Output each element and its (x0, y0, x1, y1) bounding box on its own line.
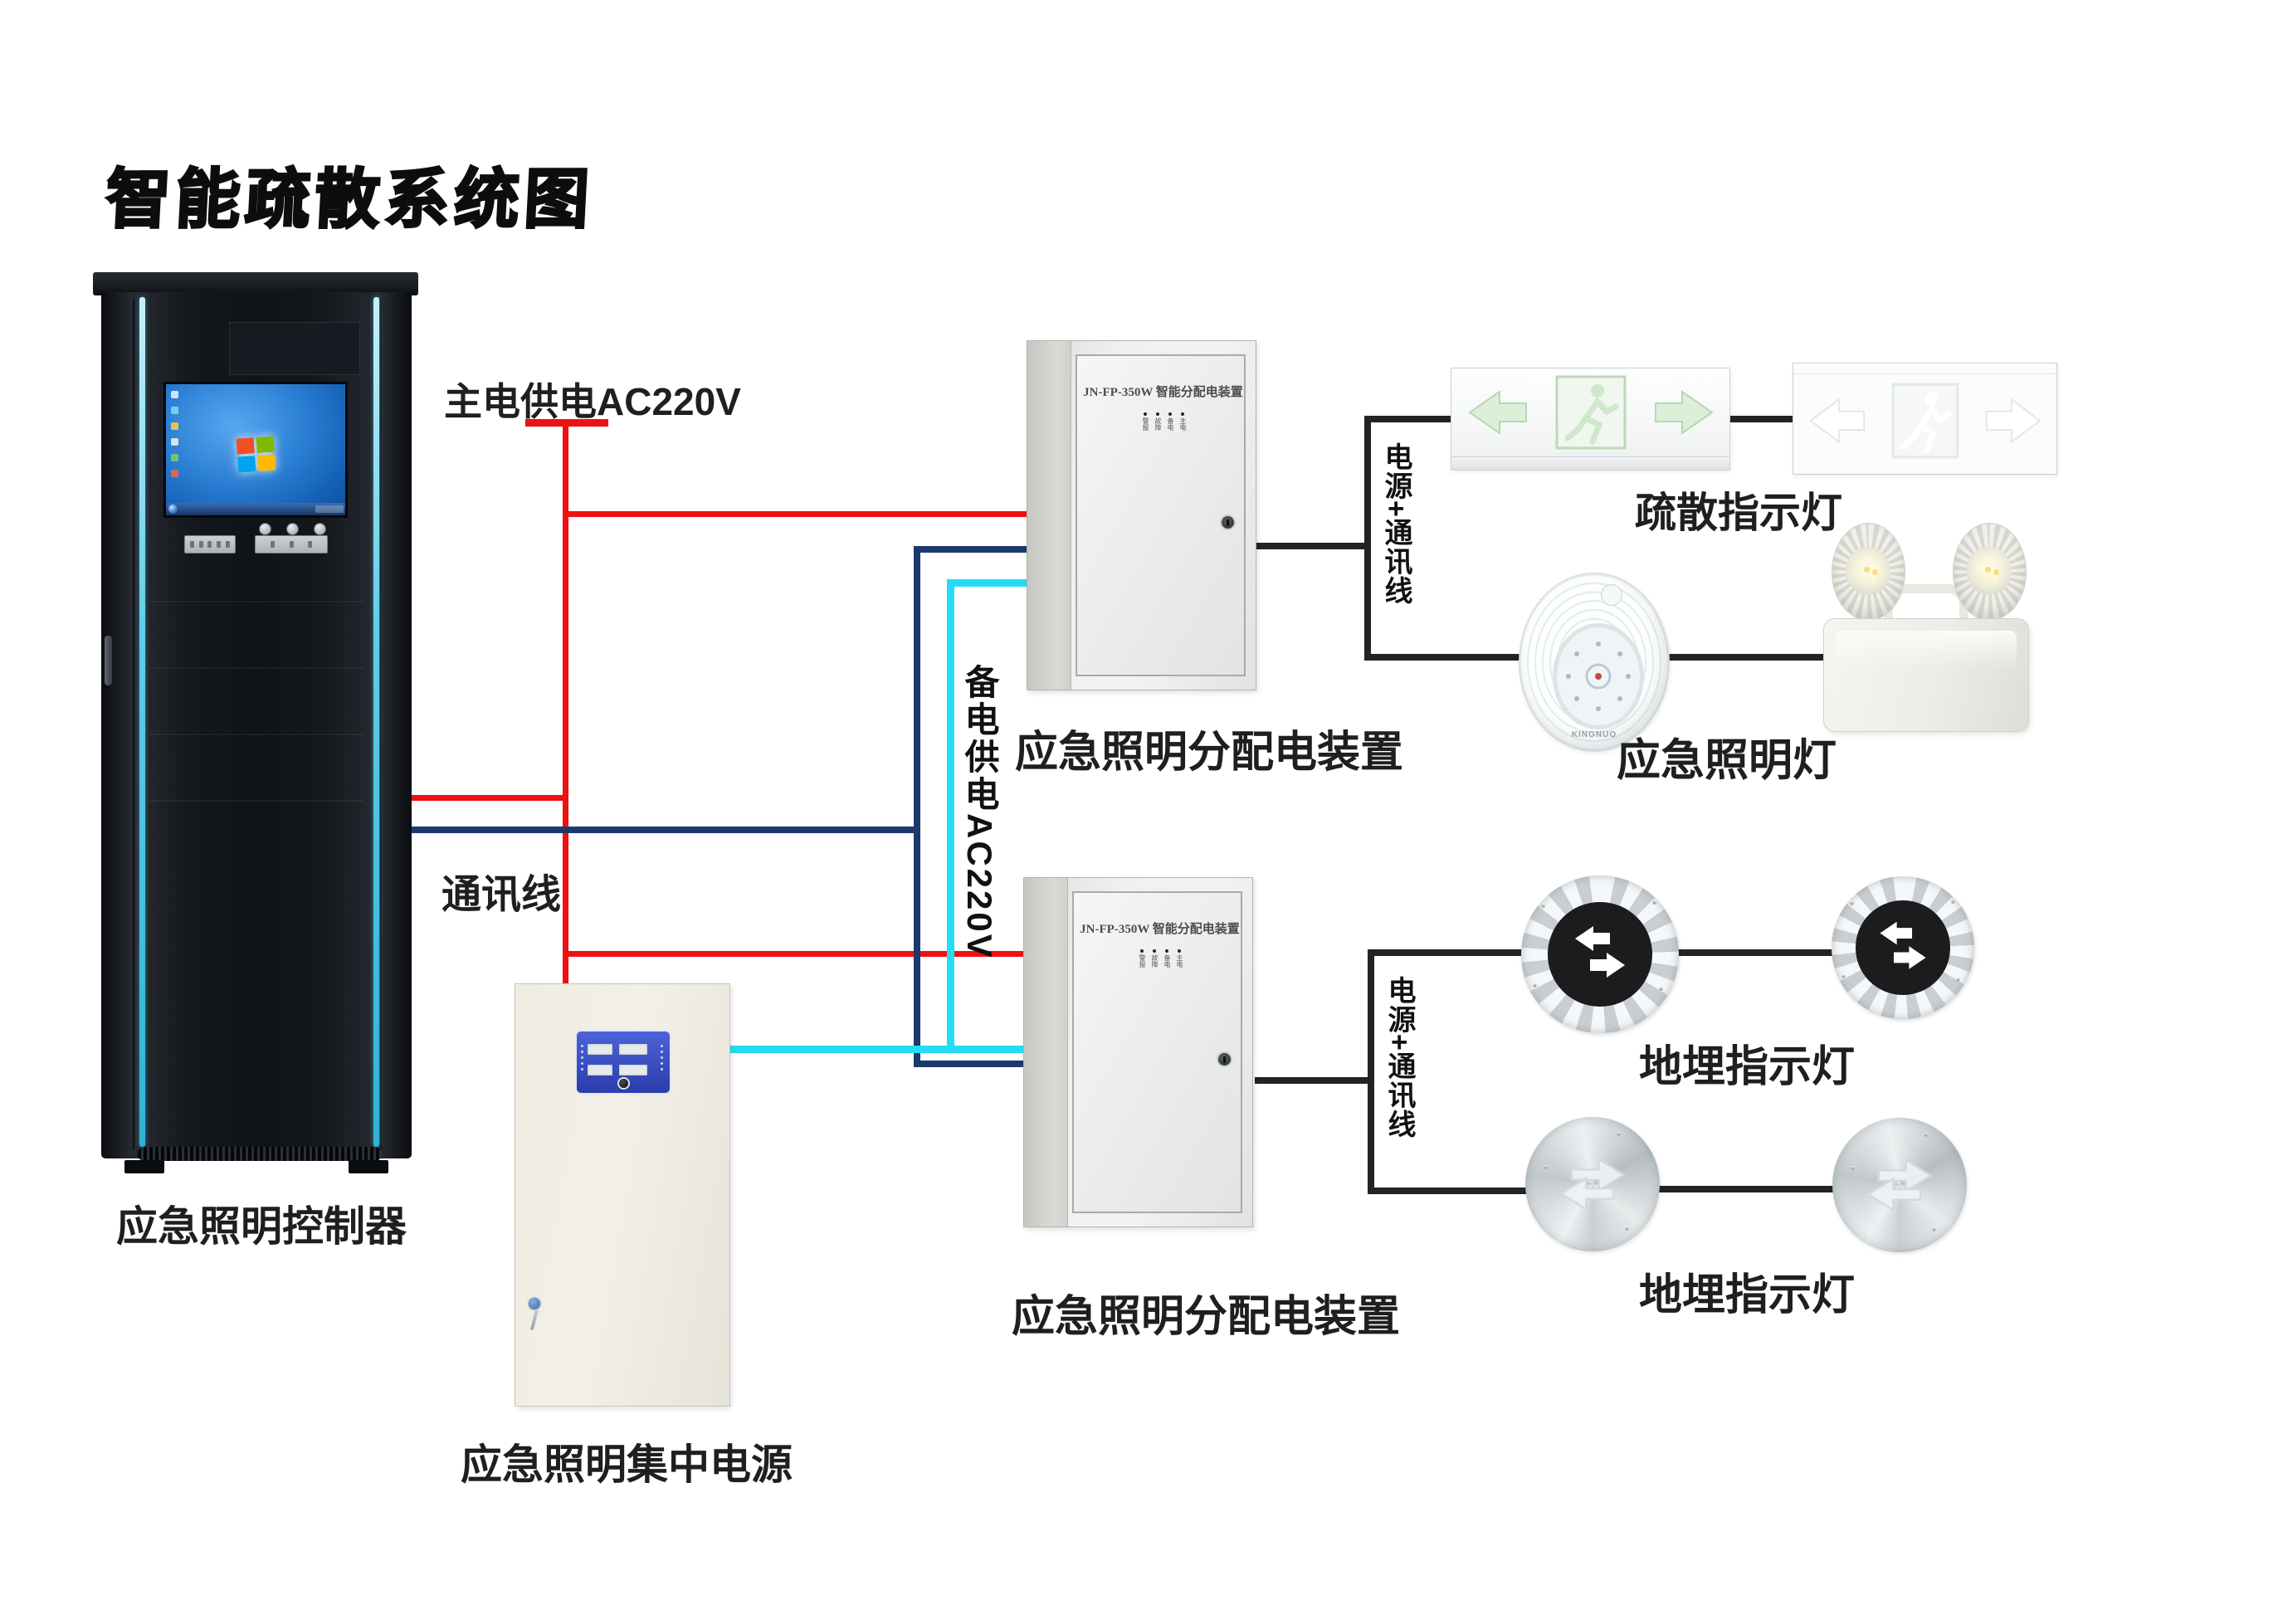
led-indicator (1156, 412, 1159, 416)
cabinet-seam-left (133, 299, 134, 1150)
exit-sign-frame (1451, 456, 1729, 470)
exit-sign-pictogram-icon (1793, 376, 2056, 466)
wire-backup-to-box1 (950, 579, 1028, 587)
wire-bracket2-to-ground-light1 (1371, 949, 1525, 956)
lamp-test-button[interactable] (1601, 584, 1622, 606)
desktop-icon[interactable] (171, 407, 178, 414)
cabinet-door-handle[interactable] (105, 636, 112, 685)
centralized-power-supply (515, 983, 730, 1407)
wire-comm-from-cabinet (411, 827, 920, 833)
wire-bracket1-to-exit-sign (1368, 416, 1454, 422)
ground-light-face (1856, 900, 1950, 995)
start-button-icon[interactable] (168, 505, 178, 514)
desktop-icon[interactable] (171, 454, 178, 461)
cabinet-io-panel-right (255, 535, 328, 554)
psu-led-column (581, 1045, 583, 1070)
box-keyhole[interactable] (1222, 516, 1234, 529)
led-indicator (1181, 412, 1184, 416)
led-label: 警报 (1139, 954, 1145, 968)
power-comm-label-2: 电源+通讯线 (1379, 976, 1420, 1139)
distribution-box-1: JN-FP-350W 智能分配电装置 警报 故障 备电 主电 (1027, 340, 1256, 690)
box-keyhole[interactable] (1218, 1053, 1231, 1066)
double-arrow-icon (1559, 913, 1641, 996)
led-indicator (1168, 412, 1172, 416)
wire-comm-to-box1 (917, 546, 1028, 553)
emergency-lighting-controller-cabinet (101, 292, 412, 1158)
desktop-icon[interactable] (171, 422, 178, 430)
wire-backup-from-psu (729, 1046, 1025, 1053)
led-indicator (1140, 949, 1144, 953)
box-side-face (1024, 878, 1068, 1227)
psu-control-panel (575, 1030, 671, 1095)
lamp-led-ring-icon (1557, 627, 1640, 725)
wire-comm-to-box2 (914, 1061, 1025, 1067)
ground-light-black-1 (1521, 875, 1679, 1033)
led-label: 警报 (1142, 417, 1149, 431)
cabinet-knob[interactable] (259, 523, 271, 535)
ground-light-caption-1: 地埋指示灯 (1639, 1031, 1855, 1094)
page-title: 智能疏散系统图 (104, 148, 597, 241)
wire-bracket1-to-oval-lamp (1368, 654, 1524, 661)
led-indicator (1165, 949, 1168, 953)
lamp-led-cluster-icon (1985, 567, 1991, 573)
taskbar[interactable] (166, 503, 345, 515)
cabinet-led-strip-left (139, 297, 145, 1147)
cabinet-shelf-line (149, 667, 363, 669)
cabinet-vent-grille (138, 1147, 382, 1161)
exit-sign-caption: 疏散指示灯 (1635, 480, 1842, 539)
wire-bracket2-vertical (1368, 949, 1374, 1194)
psu-display (588, 1065, 612, 1075)
psu-display (619, 1065, 647, 1075)
ground-light-steel-1 (1525, 1117, 1660, 1251)
wire-backup-trunk (947, 579, 954, 1053)
cabinet-foot (124, 1160, 164, 1173)
box-model-label: JN-FP-350W 智能分配电装置 (1071, 383, 1256, 400)
box-door (1076, 354, 1246, 676)
desktop-icons (171, 391, 178, 477)
psu-lock-with-key[interactable] (529, 1298, 540, 1309)
cabinet-knob[interactable] (314, 523, 326, 535)
ground-light-black-2 (1832, 876, 1974, 1019)
cabinet-shelf-line (149, 800, 363, 802)
lamp-lens (1553, 623, 1644, 729)
twin-head-lamp-left (1832, 523, 1905, 621)
led-label: 备电 (1163, 954, 1170, 968)
distribution-box-2: JN-FP-350W 智能分配电装置 警报 故障 备电 主电 (1023, 877, 1253, 1227)
arrow-left-icon (1811, 400, 1864, 442)
power-comm-label-1: 电源+通讯线 (1376, 442, 1417, 605)
cabinet-foot (349, 1160, 388, 1173)
arrow-left-icon (1575, 926, 1610, 951)
embossed-double-arrow-icon (1540, 1132, 1645, 1236)
double-arrow-icon (1865, 910, 1941, 986)
desktop-icon[interactable] (171, 391, 178, 398)
windows-logo-icon (237, 436, 277, 473)
exit-sign-frame (1793, 373, 2056, 374)
psu-knob[interactable] (619, 1079, 628, 1088)
wire-main-power-to-box1 (563, 511, 1028, 517)
power-supply-label: 应急照明集中电源 (456, 1431, 797, 1491)
led-indicator (1153, 949, 1156, 953)
distribution-box-1-label: 应急照明分配电装置 (1014, 717, 1404, 779)
wire-bracket1-vertical (1364, 416, 1371, 661)
desktop-icon[interactable] (171, 470, 178, 477)
arrow-left-icon (1880, 922, 1912, 945)
led-label: 故障 (1154, 417, 1161, 431)
led-label: 主电 (1176, 954, 1183, 968)
emergency-light-caption: 应急照明灯 (1617, 725, 1837, 788)
cabinet-recess-panel (229, 322, 360, 375)
box-door (1072, 891, 1242, 1213)
cabinet-label: 应急照明控制器 (112, 1193, 411, 1253)
lamp-led-cluster-icon (1864, 567, 1870, 573)
led-label: 主电 (1179, 417, 1186, 431)
box-model-label: JN-FP-350W 智能分配电装置 (1067, 919, 1252, 937)
distribution-box-2-label: 应急照明分配电装置 (1011, 1281, 1401, 1344)
arrow-right-icon (1656, 392, 1712, 433)
wire-main-power-from-cabinet (411, 795, 566, 801)
ground-light-steel-2 (1832, 1118, 1967, 1252)
box-side-face (1027, 341, 1071, 690)
wire-box1-to-bracket (1255, 543, 1368, 549)
ground-light-face (1548, 902, 1651, 1006)
cabinet-led-strip-right (373, 297, 379, 1147)
cabinet-seam-right (380, 299, 382, 1150)
system-tray (315, 505, 344, 513)
wire-main-power-trunk (563, 422, 568, 985)
twin-head-lamp-right (1953, 523, 2027, 621)
cabinet-knob[interactable] (286, 523, 299, 535)
wire-exit-sign1-to-sign2 (1729, 416, 1795, 422)
box-led-panel: 警报 故障 备电 主电 (1142, 412, 1186, 431)
led-indicator (1178, 949, 1181, 953)
main-power-label: 主电供电AC220V (444, 372, 741, 427)
wire-comm-trunk (914, 546, 920, 1067)
comm-line-label: 通讯线 (441, 861, 561, 919)
backup-power-label: 备电供电AC220V (954, 664, 1005, 960)
exit-sign-2 (1793, 363, 2057, 475)
twin-head-battery-case (1823, 618, 2029, 732)
arrow-left-icon (1470, 392, 1526, 433)
exit-sign-pictogram-icon (1451, 368, 1729, 456)
cabinet-shelf-line (149, 734, 363, 735)
led-label: 备电 (1167, 417, 1173, 431)
arrow-right-icon (1590, 953, 1625, 978)
wire-ground-light1-to-light2 (1676, 949, 1834, 956)
led-indicator (1144, 412, 1147, 416)
wire-bracket2-to-ground-light3 (1371, 1188, 1529, 1194)
embossed-double-arrow-icon (1847, 1133, 1952, 1237)
psu-display (588, 1044, 612, 1055)
exit-sign-1 (1451, 368, 1730, 471)
ground-light-caption-2: 地埋指示灯 (1639, 1260, 1855, 1322)
arrow-right-icon (1987, 400, 2040, 442)
arrow-right-icon (1894, 946, 1926, 969)
wire-oval-lamp-to-twin-head (1666, 654, 1826, 661)
wire-box2-to-bracket (1255, 1077, 1371, 1084)
psu-led-column (661, 1045, 663, 1070)
controller-screen[interactable] (163, 382, 348, 518)
box-led-panel: 警报 故障 备电 主电 (1139, 949, 1183, 968)
wire-ground-light3-to-light4 (1658, 1186, 1836, 1192)
cabinet-io-panel-left (184, 535, 236, 554)
desktop-icon[interactable] (171, 438, 178, 446)
cabinet-top-cap (93, 272, 418, 294)
led-label: 故障 (1151, 954, 1158, 968)
psu-display (619, 1044, 647, 1055)
cabinet-shelf-line (149, 601, 363, 602)
diagram-canvas: 智能疏散系统图 主电供电AC220V 通讯线 备电供电AC220V 电源+通讯线… (0, 0, 2278, 1624)
